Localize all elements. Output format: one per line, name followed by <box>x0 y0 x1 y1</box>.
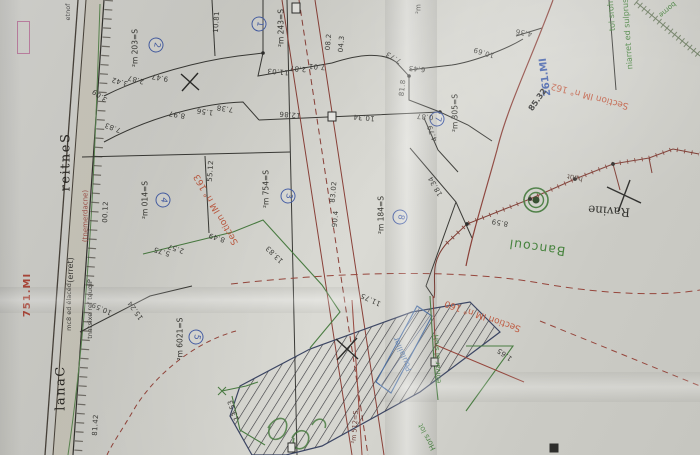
parcel-number-badge: 2 <box>147 36 164 53</box>
parcel-boundaries <box>80 0 616 455</box>
cross-marks <box>181 73 641 360</box>
dimension-label: 21.55 <box>207 160 215 182</box>
note-hors-lot: hors lot <box>607 1 617 32</box>
road-label-encadrement: (encadrement) <box>83 190 90 242</box>
dimension-label: 1.56 <box>196 106 214 115</box>
dimension-label: 7.73 <box>385 50 403 64</box>
parcel-number-badge: 1 <box>250 15 267 32</box>
dimension-label: 9.47 <box>151 72 169 82</box>
dimension-label: 11.03 <box>267 67 289 76</box>
parcel-area-label: S=457 m² <box>262 170 270 208</box>
dimension-label: 13.53 <box>227 399 241 422</box>
dimension-label: 8.97 <box>168 109 186 119</box>
dimension-label: 0.87 <box>416 112 433 120</box>
dimension-label: 8.18 <box>399 79 408 96</box>
parcel-area-label: S=481 m² <box>377 196 385 234</box>
dimension-label: 3.40 <box>338 35 346 52</box>
note-s215: S=215 m² <box>351 410 360 443</box>
plan-linework <box>0 0 700 455</box>
tree-symbol <box>524 188 548 212</box>
fence-line <box>434 149 699 298</box>
parcel-number-badge: 3 <box>279 187 296 204</box>
survey-plan-photo: Sentier (terre) (encadrement) Canal font… <box>0 0 700 455</box>
note-hors-lot-2: Hors lot <box>417 422 437 451</box>
ref-section-162: Section IM n° 162 <box>550 80 629 109</box>
dimension-label: 2.87 <box>127 73 145 84</box>
dimension-label: 21.00 <box>102 201 110 223</box>
parcel-area-label: S=410 m² <box>141 181 149 219</box>
dimension-label: 24.18 <box>92 414 100 436</box>
dimension-label: 7.38 <box>216 103 234 112</box>
note-poulailler: Poulailler <box>392 336 414 373</box>
dimension-label: 10.34 <box>353 113 375 122</box>
note-m2-fragment: m² <box>416 4 423 14</box>
dimension-label: 4.09 <box>332 210 340 227</box>
parcel-area-label: S=1206 m² <box>176 318 184 361</box>
legend-box <box>17 21 30 54</box>
parcel-area-label: S=342 m² <box>277 9 285 47</box>
parcel-area-label: S=503 m² <box>451 94 459 132</box>
road-label-sentier: Sentier <box>60 133 73 192</box>
note-decale: décalé de 8cm <box>66 283 73 331</box>
dimension-label: 7.01 <box>308 62 325 70</box>
dimension-label: 10.59 <box>91 300 113 315</box>
dimension-label: 18.01 <box>213 11 221 33</box>
note-borne: borne <box>657 0 677 18</box>
place-label-ravine: Ravine <box>588 204 631 219</box>
ref-im157: IM.157 <box>23 273 33 317</box>
place-label-bancoul: Bancoul <box>508 237 566 257</box>
dimension-label: 15.24 <box>127 299 145 321</box>
road-label-canal: Canal <box>55 365 68 410</box>
parcel-number-badge: 8 <box>391 208 408 225</box>
road-label-terre: (terre) <box>67 257 75 282</box>
paper-crease-horizontal-left <box>0 287 360 313</box>
dimension-label: 7.83 <box>104 121 122 133</box>
hatched-building-main <box>230 302 500 455</box>
paper-crease-horizontal-right <box>380 372 700 402</box>
note-haut: haut <box>566 172 583 182</box>
parcel-number-badge: 5 <box>187 328 204 345</box>
dimension-label: 2.87 <box>289 64 306 72</box>
dimension-label: 18.34 <box>428 175 445 197</box>
parcel-number-badge: 4 <box>154 191 171 208</box>
dimension-label: 11.75 <box>360 291 382 306</box>
dimension-label: 4.36 <box>515 27 533 37</box>
dimension-label: 20.38 <box>330 181 339 203</box>
note-surplus: surplus de terrain <box>622 0 635 70</box>
dimension-label: 13.83 <box>265 244 285 264</box>
note-hors-la-ravine: Hors la ravine <box>433 335 443 384</box>
note-piquet: Piquet fer existant <box>87 279 94 339</box>
dimension-label: 8.59 <box>491 217 509 227</box>
dimension-label: 1.65 <box>496 346 514 361</box>
dimension-label: 12.86 <box>279 110 301 119</box>
dimension-label: 8.49 <box>208 231 226 243</box>
dimension-label: 3.09 <box>91 87 109 102</box>
dimension-label: 6.43 <box>408 64 425 72</box>
parcel-area-label: S=302 m² <box>131 29 139 67</box>
photo-shading <box>0 0 700 455</box>
dimension-label: 10.69 <box>473 46 496 59</box>
ref-im162-distance: 23.58 <box>527 87 548 112</box>
ref-section-160: Section IM n° 160 <box>444 298 522 332</box>
dimension-label: 2.80 <box>325 33 333 50</box>
road-label-fonte: fonte <box>65 4 72 21</box>
